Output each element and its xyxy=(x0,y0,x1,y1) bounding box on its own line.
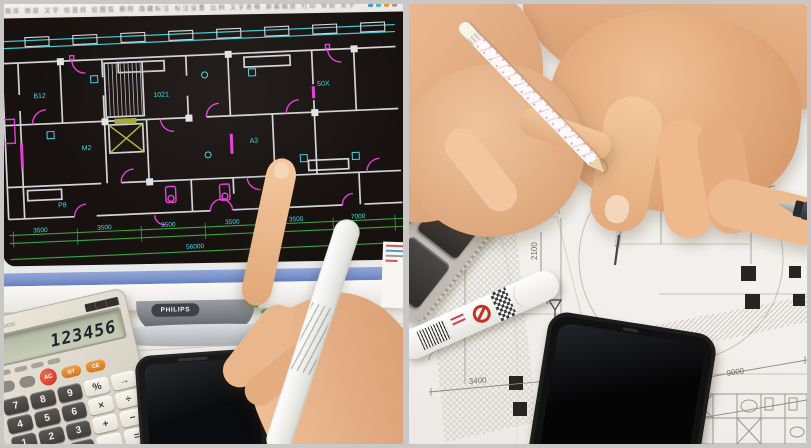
room-label: M2 xyxy=(82,145,92,152)
dim-text: 3400 xyxy=(468,375,487,386)
calculator-key-blank xyxy=(4,379,16,393)
drawing-compass xyxy=(579,39,807,279)
calculator-key: 6 xyxy=(60,401,88,422)
calculator-key: 4 xyxy=(6,413,34,434)
calculator-key: + xyxy=(92,413,120,434)
room-label: 1021 xyxy=(153,91,169,99)
right-photo-blueprints: 3400 9000 30700 2100 500 200 0 0 1 4 xyxy=(409,4,807,444)
phone-screen xyxy=(538,322,706,444)
collage-frame: 图库 图层 文字 绘直线 绘圆弧 删除 隐藏标注 标注设置 比例 文字表格 屏幕… xyxy=(4,4,807,444)
toolbar-icon-blue xyxy=(368,4,373,7)
marker-red-logo xyxy=(470,302,494,326)
calculator-key: 8 xyxy=(29,389,57,410)
calculator-key: % xyxy=(83,376,111,397)
toolbar-icon-teal xyxy=(376,4,381,7)
room-label: P8 xyxy=(58,202,67,209)
dim-text: 9000 xyxy=(726,366,746,378)
cad-windows xyxy=(25,22,385,47)
dim-text: 3500 xyxy=(33,227,48,235)
cad-corridor-lines xyxy=(4,25,395,49)
dim-text: 2100 xyxy=(530,242,539,260)
calculator-key-ac: AC xyxy=(38,367,58,387)
calculator-key: 3 xyxy=(65,419,93,440)
dim-text: 3500 xyxy=(97,224,112,232)
calculator-key: × xyxy=(87,395,115,416)
calculator-key: 2 xyxy=(38,426,66,444)
marker-barcode xyxy=(416,320,452,350)
calculator-key: 9 xyxy=(56,382,84,403)
calculator-key-gt: GT xyxy=(60,364,82,379)
calculator-key-ce: CE xyxy=(85,358,107,373)
marker-red-text xyxy=(450,313,464,321)
room-label: 50X xyxy=(317,80,330,88)
calculator-key: 5 xyxy=(33,407,61,428)
pointing-hand xyxy=(184,122,403,444)
calculator-key: 7 xyxy=(4,395,30,416)
index-finger xyxy=(239,156,300,309)
calculator-key: → xyxy=(110,370,138,391)
toolbar-icon-orange xyxy=(384,4,389,7)
cad-toolbar-icons xyxy=(368,4,397,7)
cad-elevator xyxy=(108,118,143,153)
calculator-key: 1 xyxy=(10,432,38,444)
calculator-key-blank xyxy=(18,375,36,389)
calculator-key xyxy=(96,432,124,444)
dim-text: 3500 xyxy=(161,221,176,229)
photo-collage: 图库 图层 文字 绘直线 绘圆弧 删除 隐藏标注 标注设置 比例 文字表格 屏幕… xyxy=(0,0,811,448)
cad-stairs xyxy=(108,61,154,117)
left-photo-cad-monitor: 图库 图层 文字 绘直线 绘圆弧 删除 隐藏标注 标注设置 比例 文字表格 屏幕… xyxy=(4,4,403,444)
compass-metal-parts xyxy=(615,47,791,265)
room-label: B12 xyxy=(33,93,46,101)
toolbar-icon-gray xyxy=(392,4,397,7)
